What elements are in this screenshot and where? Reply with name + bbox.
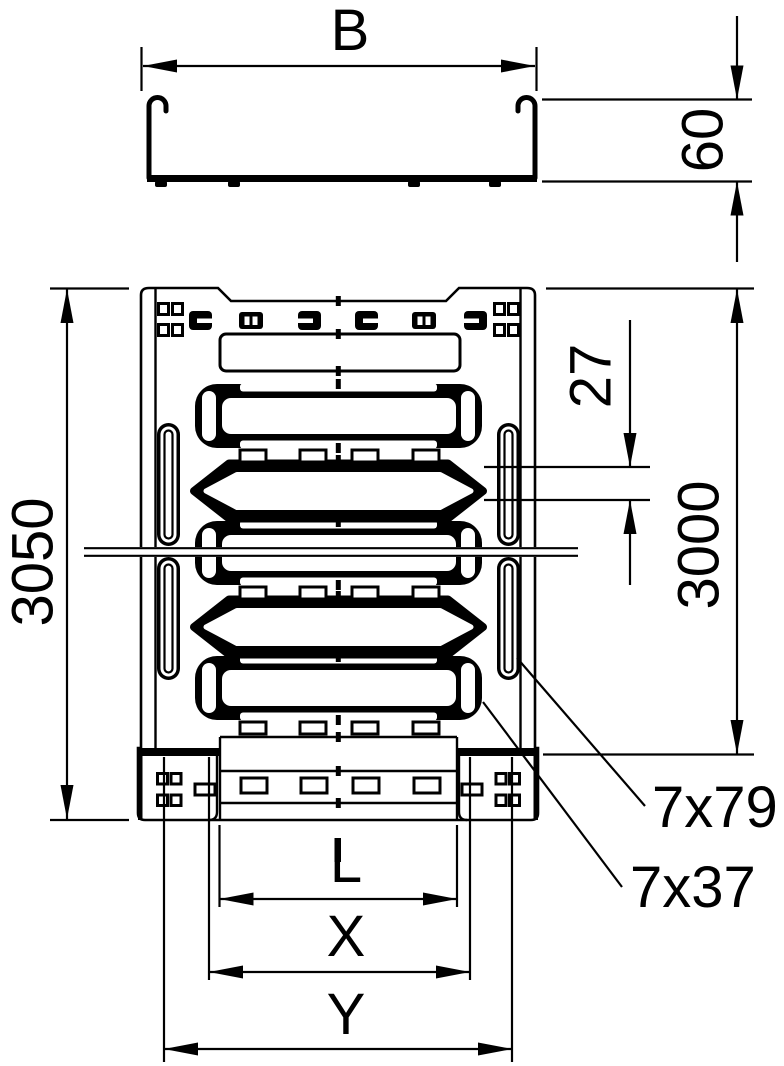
tray-foot xyxy=(489,181,501,187)
technical-drawing: B 60 xyxy=(0,0,784,1066)
tray-foot xyxy=(155,181,167,187)
tray-profile-right-wall xyxy=(518,98,535,179)
flange-edge-left xyxy=(138,748,143,820)
dim-60-label: 60 xyxy=(670,108,735,173)
label-7x37: 7x37 xyxy=(630,855,756,920)
rung-slot-bone-3 xyxy=(195,656,482,721)
tray-foot xyxy=(228,181,240,187)
dim-l-label: L xyxy=(330,830,362,895)
dim-y-label: Y xyxy=(327,982,366,1047)
dim-x-label: X xyxy=(327,904,366,969)
label-7x79: 7x79 xyxy=(652,775,778,840)
rung-slot-bone-1 xyxy=(195,384,482,449)
top-plain-slot xyxy=(220,334,460,371)
plan-view: 7x79 7x37 3050 27 xyxy=(0,288,777,1062)
dim-3050-label: 3050 xyxy=(0,497,65,626)
rung-slot-hex-1 xyxy=(194,464,483,519)
rail-slot-left-2 xyxy=(157,557,180,680)
tray-foot xyxy=(408,181,420,187)
drawing-sheet: B 60 xyxy=(0,0,784,1066)
flange-bar-right xyxy=(456,748,538,756)
flange-edge-right xyxy=(534,748,539,820)
dimension-60: 60 xyxy=(542,16,752,262)
dim-3000-label: 3000 xyxy=(666,480,731,609)
leader-7x79: 7x79 xyxy=(517,658,778,840)
rail-slot-right-1 xyxy=(497,423,520,546)
dimension-b: B xyxy=(142,0,537,91)
cross-section-view: B 60 xyxy=(142,0,753,262)
break-lines xyxy=(84,547,578,557)
flange-bar-left xyxy=(138,748,220,756)
dimension-l: L xyxy=(220,825,458,907)
rail-slot-right-2 xyxy=(497,557,520,680)
dim-b-label: B xyxy=(331,0,370,63)
tray-profile-left-wall xyxy=(149,98,166,179)
dim-27-label: 27 xyxy=(558,344,623,409)
rung-slot-hex-2 xyxy=(194,600,483,655)
rail-slot-left-1 xyxy=(157,423,180,546)
